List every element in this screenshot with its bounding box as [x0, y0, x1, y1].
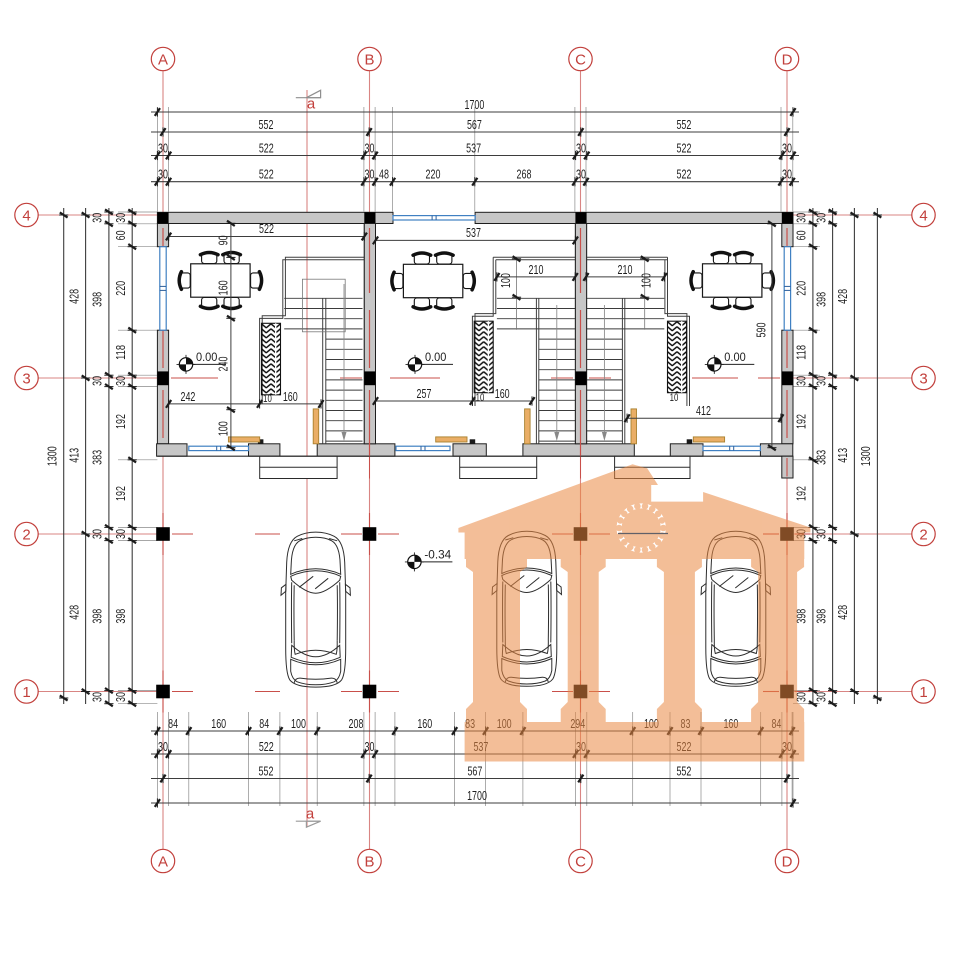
- svg-text:30: 30: [114, 529, 128, 539]
- svg-text:522: 522: [259, 222, 274, 236]
- svg-text:398: 398: [114, 609, 128, 624]
- svg-text:160: 160: [283, 390, 298, 404]
- svg-text:220: 220: [426, 168, 441, 182]
- svg-text:48: 48: [379, 168, 389, 182]
- svg-text:B: B: [364, 51, 374, 68]
- svg-text:1300: 1300: [859, 446, 873, 466]
- svg-text:30: 30: [782, 142, 792, 156]
- svg-text:537: 537: [466, 142, 481, 156]
- svg-text:428: 428: [836, 605, 850, 620]
- svg-text:C: C: [575, 853, 586, 870]
- svg-text:522: 522: [259, 168, 274, 182]
- svg-text:428: 428: [67, 605, 81, 620]
- svg-text:552: 552: [259, 118, 274, 132]
- svg-text:2: 2: [919, 526, 927, 543]
- svg-text:A: A: [158, 51, 168, 68]
- svg-text:3: 3: [919, 370, 927, 387]
- svg-text:0.00: 0.00: [425, 350, 447, 364]
- svg-text:413: 413: [67, 448, 81, 463]
- svg-text:84: 84: [168, 717, 178, 731]
- svg-text:2: 2: [22, 526, 30, 543]
- svg-text:522: 522: [259, 740, 274, 754]
- svg-text:a: a: [307, 96, 316, 113]
- svg-text:30: 30: [795, 213, 809, 223]
- svg-text:257: 257: [417, 387, 432, 401]
- svg-text:100: 100: [499, 273, 513, 288]
- svg-text:30: 30: [814, 529, 828, 539]
- svg-text:a: a: [306, 806, 315, 823]
- svg-text:100: 100: [291, 717, 306, 731]
- svg-text:100: 100: [216, 421, 230, 436]
- svg-text:192: 192: [795, 414, 809, 429]
- svg-text:B: B: [364, 853, 374, 870]
- svg-text:30: 30: [91, 529, 105, 539]
- svg-text:84: 84: [259, 717, 269, 731]
- svg-text:1: 1: [22, 684, 30, 701]
- svg-text:4: 4: [22, 207, 30, 224]
- svg-text:10: 10: [263, 393, 272, 405]
- svg-text:220: 220: [114, 281, 128, 296]
- svg-text:428: 428: [836, 289, 850, 304]
- svg-text:1700: 1700: [465, 98, 485, 112]
- svg-text:398: 398: [814, 292, 828, 307]
- svg-text:30: 30: [114, 692, 128, 702]
- svg-text:192: 192: [114, 414, 128, 429]
- svg-text:30: 30: [365, 740, 375, 754]
- svg-text:30: 30: [91, 213, 105, 223]
- svg-text:210: 210: [618, 263, 633, 277]
- svg-text:30: 30: [91, 692, 105, 702]
- svg-text:118: 118: [114, 345, 128, 360]
- svg-text:160: 160: [495, 387, 510, 401]
- svg-text:D: D: [782, 853, 793, 870]
- svg-text:428: 428: [67, 289, 81, 304]
- svg-text:242: 242: [181, 390, 196, 404]
- svg-text:1: 1: [919, 684, 927, 701]
- svg-text:30: 30: [114, 376, 128, 386]
- svg-text:413: 413: [836, 448, 850, 463]
- svg-text:383: 383: [91, 450, 105, 465]
- svg-text:220: 220: [795, 281, 809, 296]
- svg-text:3: 3: [22, 370, 30, 387]
- svg-text:10: 10: [476, 392, 485, 404]
- svg-text:30: 30: [114, 213, 128, 223]
- svg-text:192: 192: [114, 486, 128, 501]
- svg-text:552: 552: [676, 118, 691, 132]
- svg-text:192: 192: [795, 486, 809, 501]
- svg-text:D: D: [782, 51, 793, 68]
- svg-text:268: 268: [517, 168, 532, 182]
- svg-text:30: 30: [365, 168, 375, 182]
- svg-text:C: C: [575, 51, 586, 68]
- svg-text:0.00: 0.00: [724, 350, 746, 364]
- svg-text:398: 398: [91, 609, 105, 624]
- svg-text:567: 567: [467, 118, 482, 132]
- svg-text:30: 30: [576, 168, 586, 182]
- svg-text:522: 522: [259, 142, 274, 156]
- svg-text:30: 30: [782, 168, 792, 182]
- svg-text:60: 60: [795, 230, 809, 240]
- svg-text:4: 4: [919, 207, 927, 224]
- svg-text:398: 398: [91, 292, 105, 307]
- svg-text:1700: 1700: [467, 789, 487, 803]
- svg-text:537: 537: [466, 226, 481, 240]
- svg-text:208: 208: [349, 717, 364, 731]
- svg-text:160: 160: [211, 717, 226, 731]
- svg-text:30: 30: [91, 376, 105, 386]
- svg-text:30: 30: [158, 142, 168, 156]
- svg-text:210: 210: [529, 263, 544, 277]
- svg-text:30: 30: [158, 168, 168, 182]
- svg-text:90: 90: [216, 235, 230, 245]
- svg-text:-0.34: -0.34: [424, 548, 451, 562]
- svg-text:522: 522: [677, 168, 692, 182]
- svg-text:590: 590: [755, 323, 769, 338]
- svg-text:1300: 1300: [46, 446, 60, 466]
- svg-text:30: 30: [576, 142, 586, 156]
- svg-text:A: A: [158, 853, 168, 870]
- svg-text:398: 398: [814, 609, 828, 624]
- svg-text:160: 160: [417, 717, 432, 731]
- svg-text:60: 60: [114, 230, 128, 240]
- svg-text:118: 118: [795, 345, 809, 360]
- svg-text:30: 30: [795, 376, 809, 386]
- svg-text:412: 412: [696, 404, 711, 418]
- svg-text:30: 30: [158, 740, 168, 754]
- svg-text:30: 30: [365, 142, 375, 156]
- svg-text:0.00: 0.00: [196, 350, 218, 364]
- svg-text:552: 552: [259, 765, 274, 779]
- svg-text:552: 552: [676, 765, 691, 779]
- svg-text:10: 10: [670, 392, 679, 404]
- svg-text:567: 567: [467, 765, 482, 779]
- svg-text:522: 522: [677, 142, 692, 156]
- svg-text:160: 160: [216, 280, 230, 295]
- svg-text:100: 100: [640, 273, 654, 288]
